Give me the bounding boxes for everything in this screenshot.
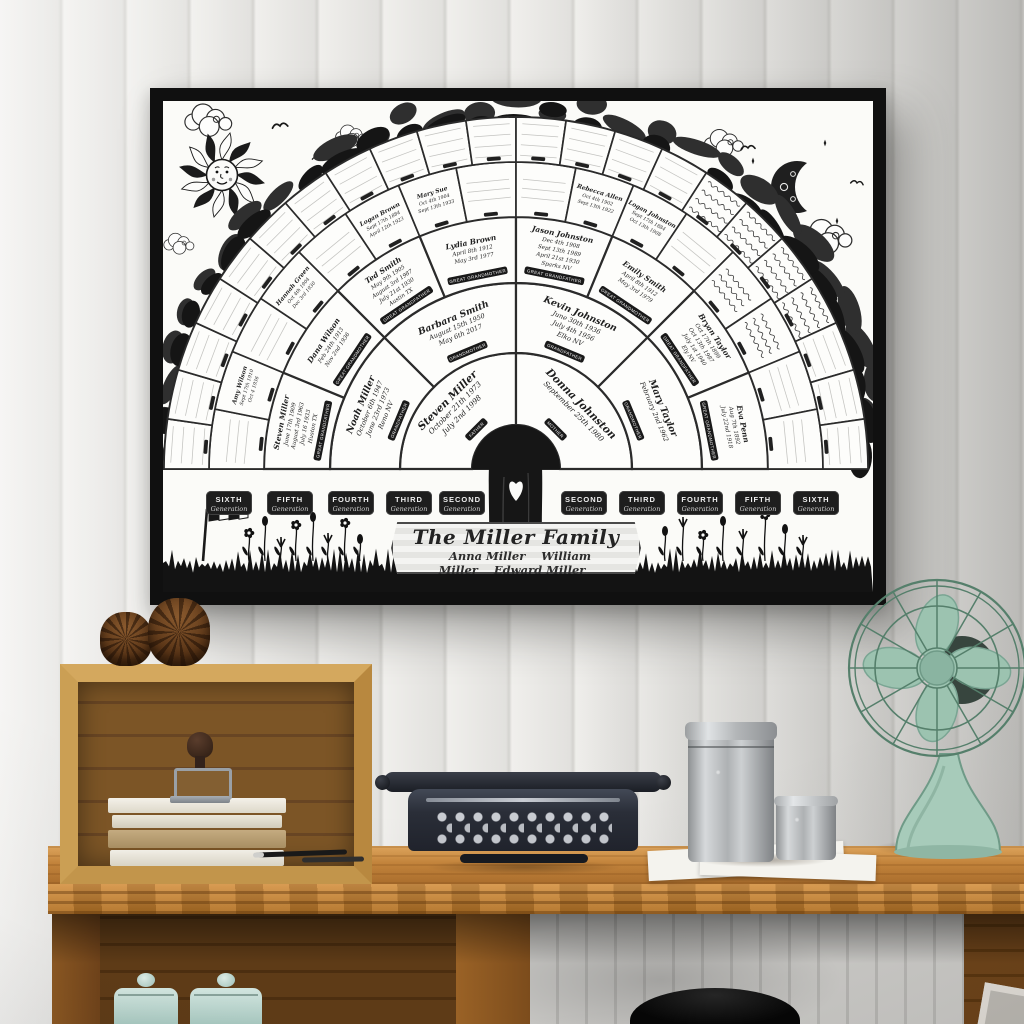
stamp-knob	[187, 732, 213, 758]
generation-badge: SECONDGeneration	[561, 491, 607, 515]
star-icon	[824, 140, 827, 147]
family-tree-poster: Steven MillerOctober 21th 1973July 2nd 1…	[163, 101, 873, 592]
metal-cup	[776, 798, 836, 860]
star-icon	[836, 218, 839, 225]
cloud-icon	[185, 104, 232, 136]
fan-sector-gen5-8	[456, 162, 516, 222]
bird-icon	[851, 180, 864, 184]
under-desk	[52, 914, 1024, 1024]
star-icon	[752, 158, 755, 165]
generation-badge: THIRDGeneration	[386, 491, 432, 515]
generation-badge: FIFTHGeneration	[267, 491, 313, 515]
generation-badge: SECONDGeneration	[439, 491, 485, 515]
stool	[630, 988, 800, 1024]
fan-sector-gen6-1	[164, 419, 212, 469]
book	[112, 815, 282, 828]
teal-jar	[190, 988, 262, 1024]
teal-jar	[114, 988, 178, 1024]
fan-sector-gen6-22	[820, 419, 868, 469]
cloud-icon	[164, 233, 194, 254]
generation-badge: FOURTHGeneration	[677, 491, 723, 515]
leaning-picture-frame	[972, 982, 1024, 1024]
generation-badge: FOURTHGeneration	[328, 491, 374, 515]
cabinet-right	[964, 914, 1024, 1024]
cabinet-compartment	[100, 914, 456, 1024]
vintage-rubber-stamp	[172, 732, 228, 804]
pinecone	[148, 598, 210, 666]
back-wall-planks	[530, 914, 964, 1024]
room-scene: Steven MillerOctober 21th 1973July 2nd 1…	[0, 0, 1024, 1024]
desk-leg	[52, 914, 100, 1024]
child-name: Anna Miller	[449, 549, 525, 563]
fan-sector-gen6-12	[516, 117, 566, 165]
stamp-base	[170, 796, 230, 803]
poster-frame: Steven MillerOctober 21th 1973July 2nd 1…	[150, 88, 886, 605]
pinecone	[100, 612, 152, 666]
bird-icon	[272, 123, 288, 128]
vintage-desk-fan	[838, 548, 1024, 860]
typewriter-spacebar	[460, 854, 588, 863]
poster-title: The Miller Family	[391, 525, 641, 549]
children-names: Anna MillerWilliam MillerEdward Miller	[391, 549, 641, 577]
desk-apron	[48, 884, 1024, 914]
cabinet-divider	[456, 914, 530, 1024]
fan-sector-gen5-16	[763, 409, 823, 469]
family-name-banner: The Miller Family Anna MillerWilliam Mil…	[391, 522, 641, 574]
fan-sector-gen6-11	[466, 117, 516, 165]
vintage-typewriter	[398, 772, 648, 870]
generation-badge: FIFTHGeneration	[735, 491, 781, 515]
generation-badge: SIXTHGeneration	[206, 491, 252, 515]
book	[108, 830, 286, 848]
typewriter-body	[408, 789, 638, 851]
windsock-icon	[203, 507, 248, 561]
generation-badge: THIRDGeneration	[619, 491, 665, 515]
generation-badge: SIXTHGeneration	[793, 491, 839, 515]
metal-canister	[688, 724, 774, 862]
typewriter-keys	[434, 811, 612, 845]
family-tree-fan-art: Steven MillerOctober 21th 1973July 2nd 1…	[163, 101, 873, 592]
